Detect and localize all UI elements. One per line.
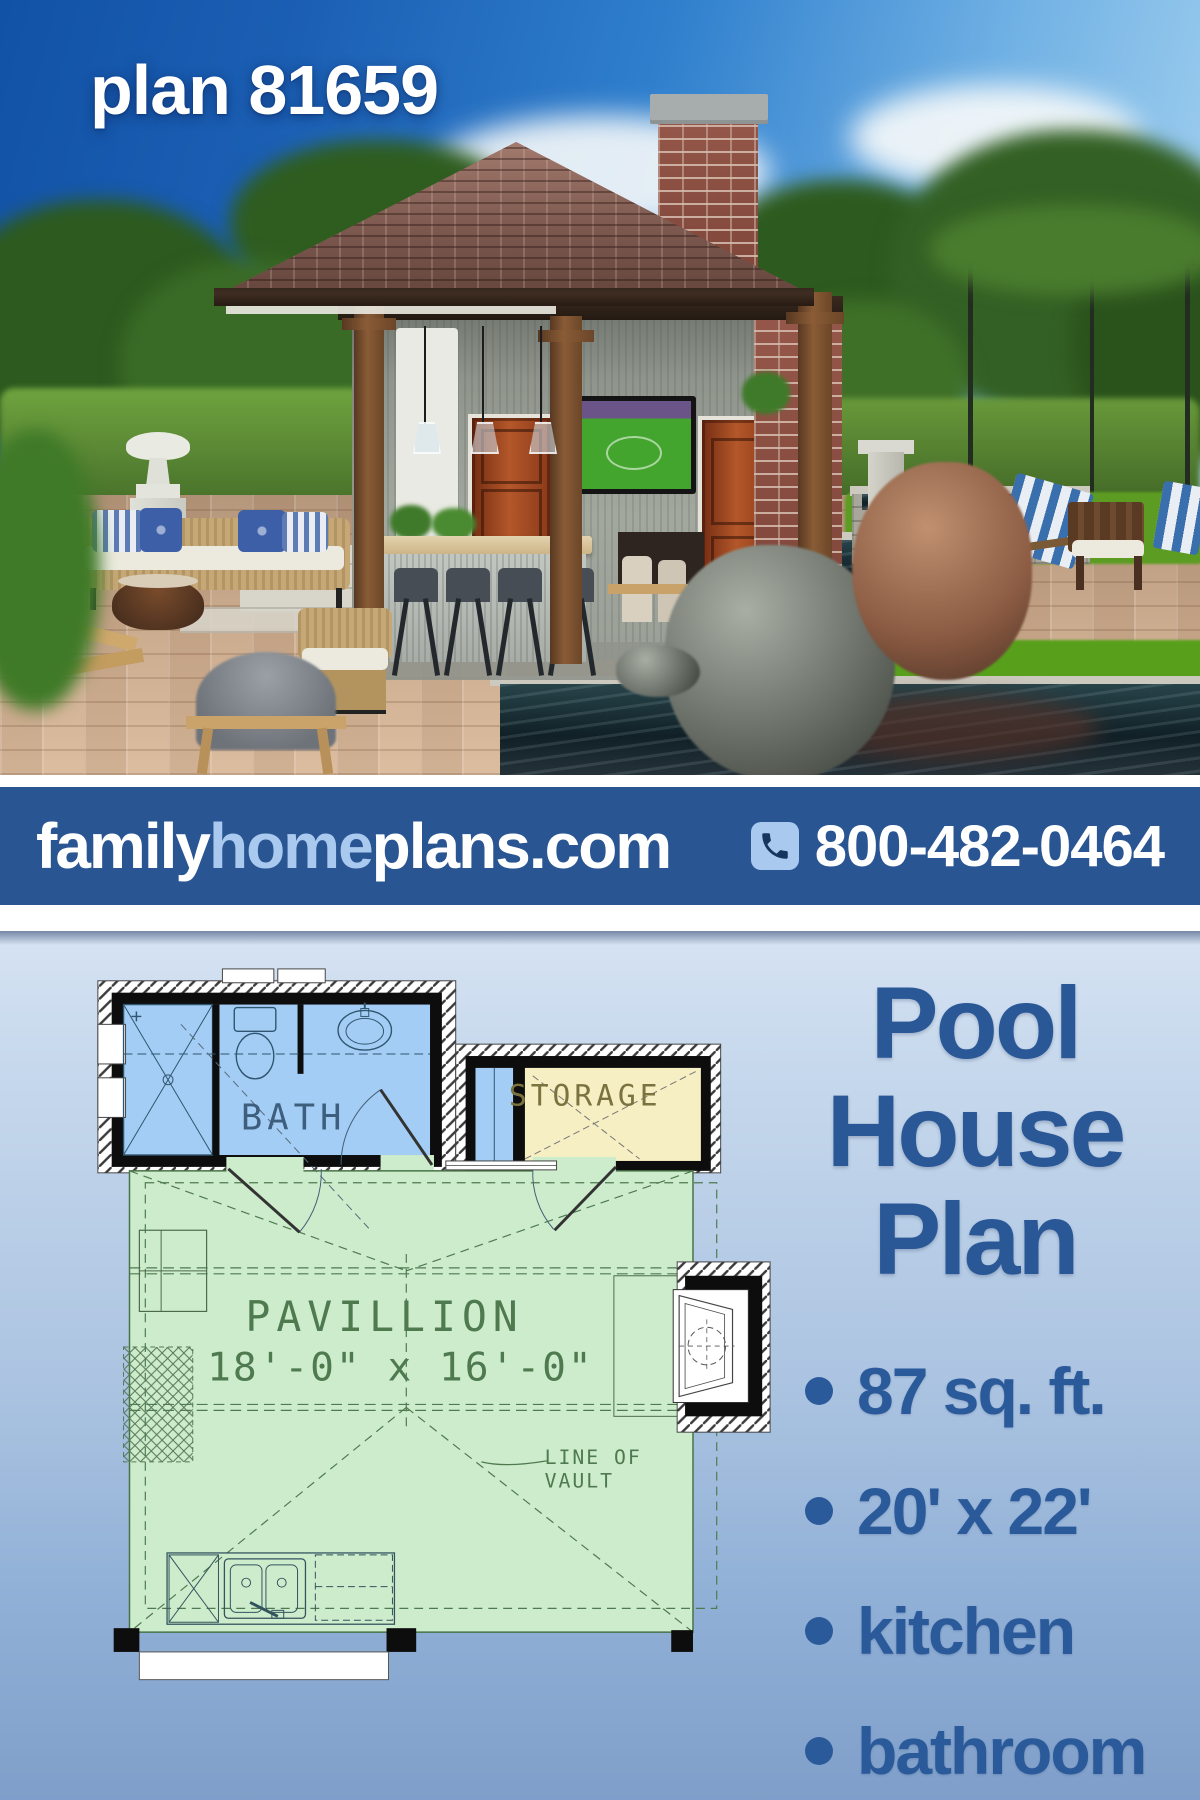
brown-boulder	[852, 462, 1032, 680]
striped-pillow	[282, 512, 328, 552]
dining-table	[608, 584, 688, 594]
pendant-cord	[540, 326, 542, 424]
pool-house-photo: plan 81659	[0, 0, 1200, 775]
feature-list: 87 sq. ft. 20' x 22' kitchen bathroom	[805, 1353, 1145, 1789]
vault-note-line2: VAULT	[545, 1470, 614, 1493]
bar-stool	[394, 568, 438, 680]
brand-family: family	[36, 810, 209, 882]
bath-label: BATH	[241, 1097, 346, 1138]
phone-contact: 800-482-0464	[751, 813, 1164, 880]
rope-chair-arm	[186, 716, 346, 729]
stool-leg	[527, 598, 544, 676]
chimney-cap	[650, 94, 768, 120]
rattan-table-top	[118, 574, 198, 588]
chair-leg	[1134, 556, 1142, 590]
wood-post	[550, 316, 582, 664]
site-banner: familyhomeplans.com 800-482-0464	[0, 787, 1200, 905]
roof-fascia	[214, 288, 814, 306]
tv-screen	[568, 396, 696, 494]
soccer-broadcast	[573, 401, 691, 489]
floor-plan-svg: BATH STORAGE PAVILLION 18'-0" x 16'-0" L…	[86, 961, 778, 1743]
feature-item: 87 sq. ft.	[805, 1353, 1145, 1429]
storage-label: STORAGE	[509, 1078, 662, 1113]
bullet-dot-icon	[805, 1617, 833, 1645]
vault-note-line1: LINE OF	[545, 1446, 642, 1469]
hanging-plant	[742, 372, 790, 414]
phone-icon	[751, 822, 799, 870]
chair-leg	[1076, 556, 1084, 590]
feature-size: 20' x 22'	[857, 1473, 1091, 1549]
phone-number: 800-482-0464	[815, 813, 1164, 880]
urn-stem	[146, 458, 170, 486]
plan-number-overlay: plan 81659	[90, 50, 438, 130]
post-corbel	[786, 312, 844, 324]
divider	[0, 775, 1200, 787]
feature-item: bathroom	[805, 1713, 1145, 1789]
feature-bathroom: bathroom	[857, 1713, 1145, 1789]
urn-base	[136, 484, 180, 498]
page-title: Pool House Plan	[780, 969, 1170, 1293]
plan-details-section: BATH STORAGE PAVILLION 18'-0" x 16'-0" L…	[0, 931, 1200, 1800]
pavilion-dimensions: 18'-0" x 16'-0"	[207, 1345, 594, 1391]
sofa-leg	[336, 588, 342, 610]
feature-item: 20' x 22'	[805, 1473, 1145, 1549]
stool-leg	[496, 598, 513, 676]
title-line: Pool	[780, 969, 1170, 1077]
brand-home: home	[209, 810, 372, 882]
pavilion-label: PAVILLION	[245, 1292, 523, 1341]
striped-pillow	[92, 510, 144, 552]
rope-chair	[196, 652, 336, 750]
bullet-dot-icon	[805, 1497, 833, 1525]
pool-house-plan-pin: plan 81659 familyhomeplans.com 800-482-0…	[0, 0, 1200, 1800]
title-line: House	[780, 1077, 1170, 1185]
pergola-vine	[930, 205, 1200, 295]
title-line: Plan	[780, 1185, 1170, 1293]
blue-pillow	[140, 508, 182, 552]
stool-leg	[444, 598, 461, 676]
site-logo: familyhomeplans.com	[36, 809, 670, 883]
divider	[0, 905, 1200, 931]
floor-plan-drawing: BATH STORAGE PAVILLION 18'-0" x 16'-0" L…	[86, 961, 778, 1743]
post-corbel	[342, 318, 396, 330]
bar-stool	[498, 568, 542, 680]
feature-area: 87 sq. ft.	[857, 1353, 1105, 1429]
stool-leg	[475, 598, 492, 676]
bullet-dot-icon	[805, 1377, 833, 1405]
bar-plant	[390, 505, 432, 539]
feature-item: kitchen	[805, 1593, 1145, 1669]
stool-leg	[392, 598, 409, 676]
feature-kitchen: kitchen	[857, 1593, 1074, 1669]
pendant-cord	[424, 326, 426, 424]
blue-pillow	[238, 510, 286, 552]
pendant-cord	[482, 326, 484, 424]
roof-soffit	[226, 306, 556, 314]
post-corbel	[538, 330, 594, 342]
brand-plans: plans.com	[372, 810, 671, 882]
stool-leg	[423, 598, 440, 676]
bar-stool	[446, 568, 490, 680]
urn-bowl	[126, 432, 190, 460]
bullet-dot-icon	[805, 1737, 833, 1765]
small-rock	[616, 645, 700, 697]
